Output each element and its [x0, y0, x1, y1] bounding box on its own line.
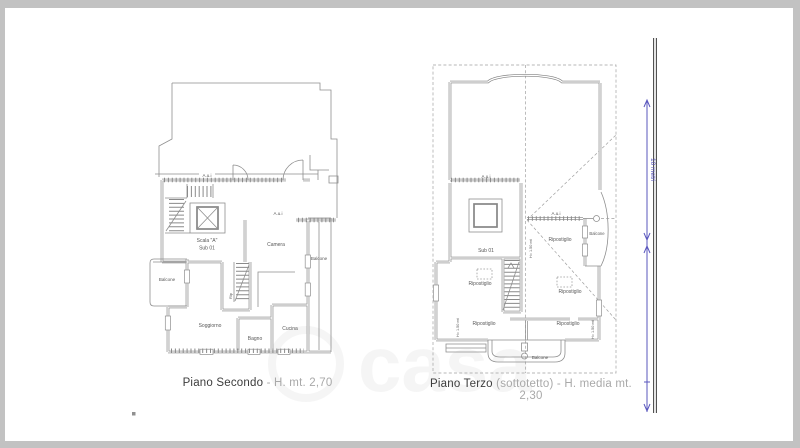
label-balcone: Balcone: [589, 231, 605, 236]
scale-label: 10 metri: [649, 158, 656, 181]
window: [433, 285, 438, 301]
window: [305, 255, 310, 268]
label-height: H= 1.50 mt: [591, 319, 595, 339]
frame-strip-left: [0, 0, 5, 448]
dimension-line: [644, 100, 650, 412]
balcony-door: [184, 270, 189, 283]
lower-stair-divider: [234, 262, 249, 302]
label-bagno: Bagno: [248, 336, 263, 342]
balcony-door-knob: [522, 353, 528, 359]
frame-strip-top: [0, 0, 800, 8]
frame-strip-bottom: [0, 441, 800, 448]
window: [305, 283, 310, 296]
label-cucina: Cucina: [282, 326, 298, 332]
stair-edges: [165, 184, 213, 233]
caption-piano-secondo: Piano Secondo - H. mt. 2,70: [150, 377, 365, 389]
caption-detail: - H. mt. 2,70: [263, 377, 332, 389]
closet-wall: [258, 272, 295, 307]
label-ripostiglio: Ripostiglio: [548, 237, 571, 243]
stair-cut-line: [503, 262, 519, 310]
caption-title: Piano Secondo: [183, 377, 264, 389]
window: [582, 226, 587, 238]
window-bay: [446, 344, 486, 352]
label-rip: Rip: [228, 292, 233, 299]
frame-strip-right: [793, 0, 800, 448]
label-sub01: Sub 01: [199, 246, 215, 252]
label-aui: A.u.i: [551, 211, 560, 216]
label-ripostiglio: Ripostiglio: [468, 281, 491, 287]
label-balcone: Balcone: [159, 277, 176, 282]
dashed-fixture: [477, 269, 492, 279]
shaft-inner: [474, 204, 497, 227]
caption-title: Piano Terzo: [430, 378, 496, 390]
roof-envelope-dashed: [433, 65, 616, 373]
label-ripostiglio: Ripostiglio: [472, 321, 495, 327]
scanned-floorplan-page: casa: [0, 0, 800, 448]
floor-plan-piano-terzo: A.u.i Sub 01 A.u.i Ripostiglio Balcone H…: [433, 65, 616, 373]
dashed-fixture: [557, 277, 572, 287]
label-ripostiglio: Ripostiglio: [558, 289, 581, 295]
balcony-door: [522, 343, 528, 351]
label-aui: A.u.i: [273, 211, 282, 216]
walls-core: [436, 75, 600, 340]
scale-line: [654, 38, 657, 413]
label-height: H= 1.50 mt: [529, 238, 533, 258]
label-camera: Camera: [267, 242, 285, 248]
walls: [436, 75, 600, 340]
floorplan-drawing: A.u.i A.u.i Scala "A" Sub 01 Camera Balc…: [0, 0, 800, 448]
caption-detail: (sottotetto) - H. media mt. 2,30: [496, 378, 632, 402]
label-soggiorno: Soggiorno: [199, 323, 222, 329]
door-circle-symbol: [594, 216, 600, 222]
label-scala: Scala "A": [197, 238, 218, 244]
label-ripostiglio: Ripostiglio: [556, 321, 579, 327]
label-aui: A.u.i: [481, 174, 490, 179]
balcony-right-outline: [308, 218, 331, 352]
caption-piano-terzo: Piano Terzo (sottotetto) - H. media mt. …: [425, 378, 637, 402]
balcony-right-outline: [585, 192, 608, 266]
label-balcone: Balcone: [311, 256, 328, 261]
door-arcs: [233, 160, 303, 180]
entry-outline: [310, 155, 338, 183]
scale-bar: 10 metri: [644, 38, 656, 413]
scan-artifact: [132, 412, 136, 416]
label-balcone: Balcone: [532, 355, 549, 360]
elevator-cross: [197, 207, 218, 229]
window: [582, 244, 587, 256]
window: [165, 316, 170, 330]
balcony-left-outline: [150, 259, 187, 306]
label-height: H= 1.50 mt: [456, 317, 460, 337]
label-aui: A.u.i: [202, 173, 211, 178]
label-sub01: Sub 01: [478, 248, 494, 254]
floor-plan-piano-secondo: A.u.i A.u.i Scala "A" Sub 01 Camera Balc…: [150, 83, 338, 354]
window: [596, 300, 601, 316]
